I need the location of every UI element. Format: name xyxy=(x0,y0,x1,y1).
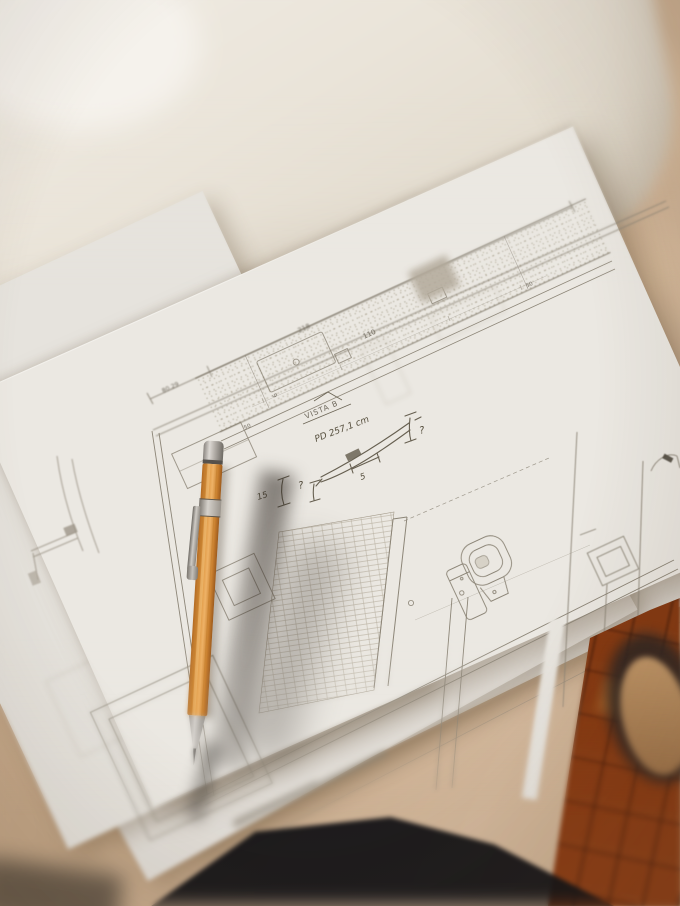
view-label: VISTA B xyxy=(303,399,339,421)
depth-note: PD 257,1 cm xyxy=(313,415,371,445)
dashed-reference-line xyxy=(404,458,549,521)
wall-niche xyxy=(587,536,638,586)
pencil-clip-foot xyxy=(186,566,198,581)
hand-question-left: ? xyxy=(297,480,305,492)
photo-scene: 80.29 218 110 xyxy=(0,0,680,906)
sink-cutout xyxy=(256,332,336,393)
toilet-drawing xyxy=(439,531,527,621)
under-sheet-table-sketch xyxy=(28,456,99,586)
dim-label-left-segment: 80.29 xyxy=(161,381,180,395)
tap-symbol xyxy=(335,349,352,364)
hand-question-right: ? xyxy=(418,425,426,437)
dim-label-right-end: 50 xyxy=(525,281,534,290)
pencil-clip-collar xyxy=(198,498,221,517)
pencil-tip-cone xyxy=(185,715,207,750)
valve-symbol xyxy=(408,600,413,605)
dim-label-overall: 218 xyxy=(296,322,311,335)
edge-sketch xyxy=(651,454,680,471)
pencil-cap xyxy=(203,440,224,461)
toilet-pedestal-wall xyxy=(436,597,468,790)
hand-label-5: 5 xyxy=(359,472,367,483)
dim-label-left-end: 50 xyxy=(243,423,252,432)
top-dimension-line xyxy=(147,201,575,404)
pencil-lead xyxy=(192,748,196,765)
wall-top-lines xyxy=(153,201,669,436)
